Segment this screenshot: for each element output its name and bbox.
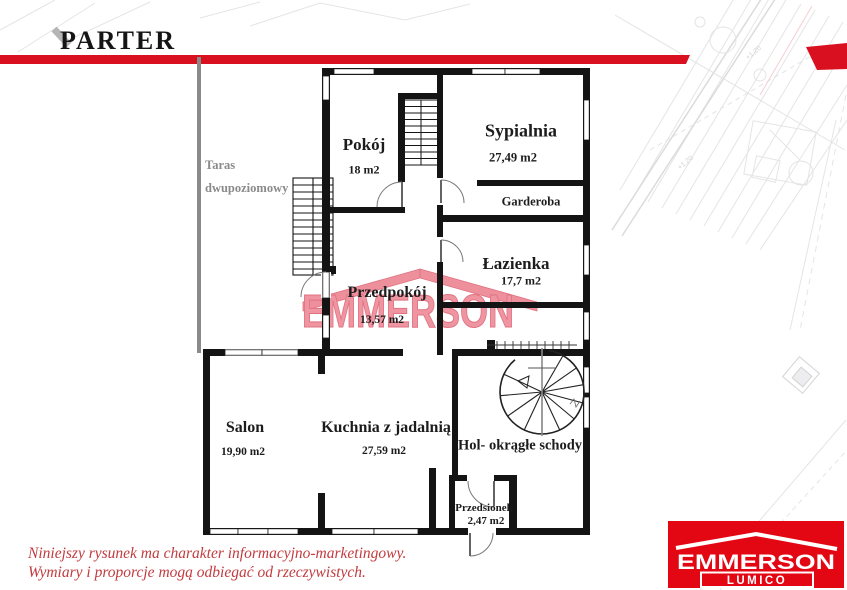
disclaimer-line1: Niniejszy rysunek ma charakter informacy… xyxy=(28,545,406,564)
door-przedsionek-exterior xyxy=(470,533,493,556)
room-area-lazienka: 17,7 m2 xyxy=(501,274,541,289)
room-label-pokoj: Pokój xyxy=(343,135,386,155)
room-label-salon: Salon xyxy=(226,419,264,437)
header-red-bar xyxy=(0,55,690,64)
room-area-pokoj: 18 m2 xyxy=(349,163,380,178)
page-title: PARTER xyxy=(60,26,176,56)
disclaimer-line2: Wymiary i proporcje mogą odbiegać od rze… xyxy=(28,564,406,583)
door-garderoba xyxy=(441,180,464,203)
brand-logo-subtext: LUMICO xyxy=(727,575,787,587)
disclaimer: Niniejszy rysunek ma charakter informacy… xyxy=(28,545,406,582)
spiral-staircase-icon xyxy=(500,348,584,436)
header-accent-shape xyxy=(806,43,847,70)
room-area-przedpokoj: 13,57 m2 xyxy=(360,314,404,326)
room-area-przedsionek: 2,47 m2 xyxy=(468,515,505,527)
room-area-kuchnia: 27,59 m2 xyxy=(362,445,406,457)
door-pokoj xyxy=(377,182,402,207)
room-area-sypialnia: 27,49 m2 xyxy=(489,151,537,166)
room-label-hol: Hol- okrągłe schody xyxy=(458,438,582,455)
site-elevation-mark: +1,20 xyxy=(745,45,763,62)
brand-logo: EMMERSON LUMICO xyxy=(668,521,844,588)
room-label-sypialnia: Sypialnia xyxy=(485,121,557,142)
floor-plan-page: +1,20 +1,20 EMMERSON xyxy=(0,0,847,590)
room-area-salon: 19,90 m2 xyxy=(221,446,265,458)
room-label-przedpokoj: Przedpokój xyxy=(347,284,426,302)
brand-logo-graphic: EMMERSON LUMICO xyxy=(668,521,844,588)
site-elevation-mark: +1,20 xyxy=(677,155,695,172)
door-lazienka xyxy=(441,240,463,262)
roof-icon xyxy=(676,534,837,549)
room-label-przedsionek: Przedsionek xyxy=(455,502,512,514)
brand-logo-text: EMMERSON xyxy=(677,551,835,574)
room-label-garderoba: Garderoba xyxy=(502,195,561,210)
indoor-staircase xyxy=(404,100,437,165)
room-label-kuchnia: Kuchnia z jadalnią xyxy=(321,419,451,437)
room-label-lazienka: Łazienka xyxy=(482,254,549,274)
taras-label-line1: Taras xyxy=(205,158,235,173)
taras-label-line2: dwupoziomowy xyxy=(205,181,288,196)
